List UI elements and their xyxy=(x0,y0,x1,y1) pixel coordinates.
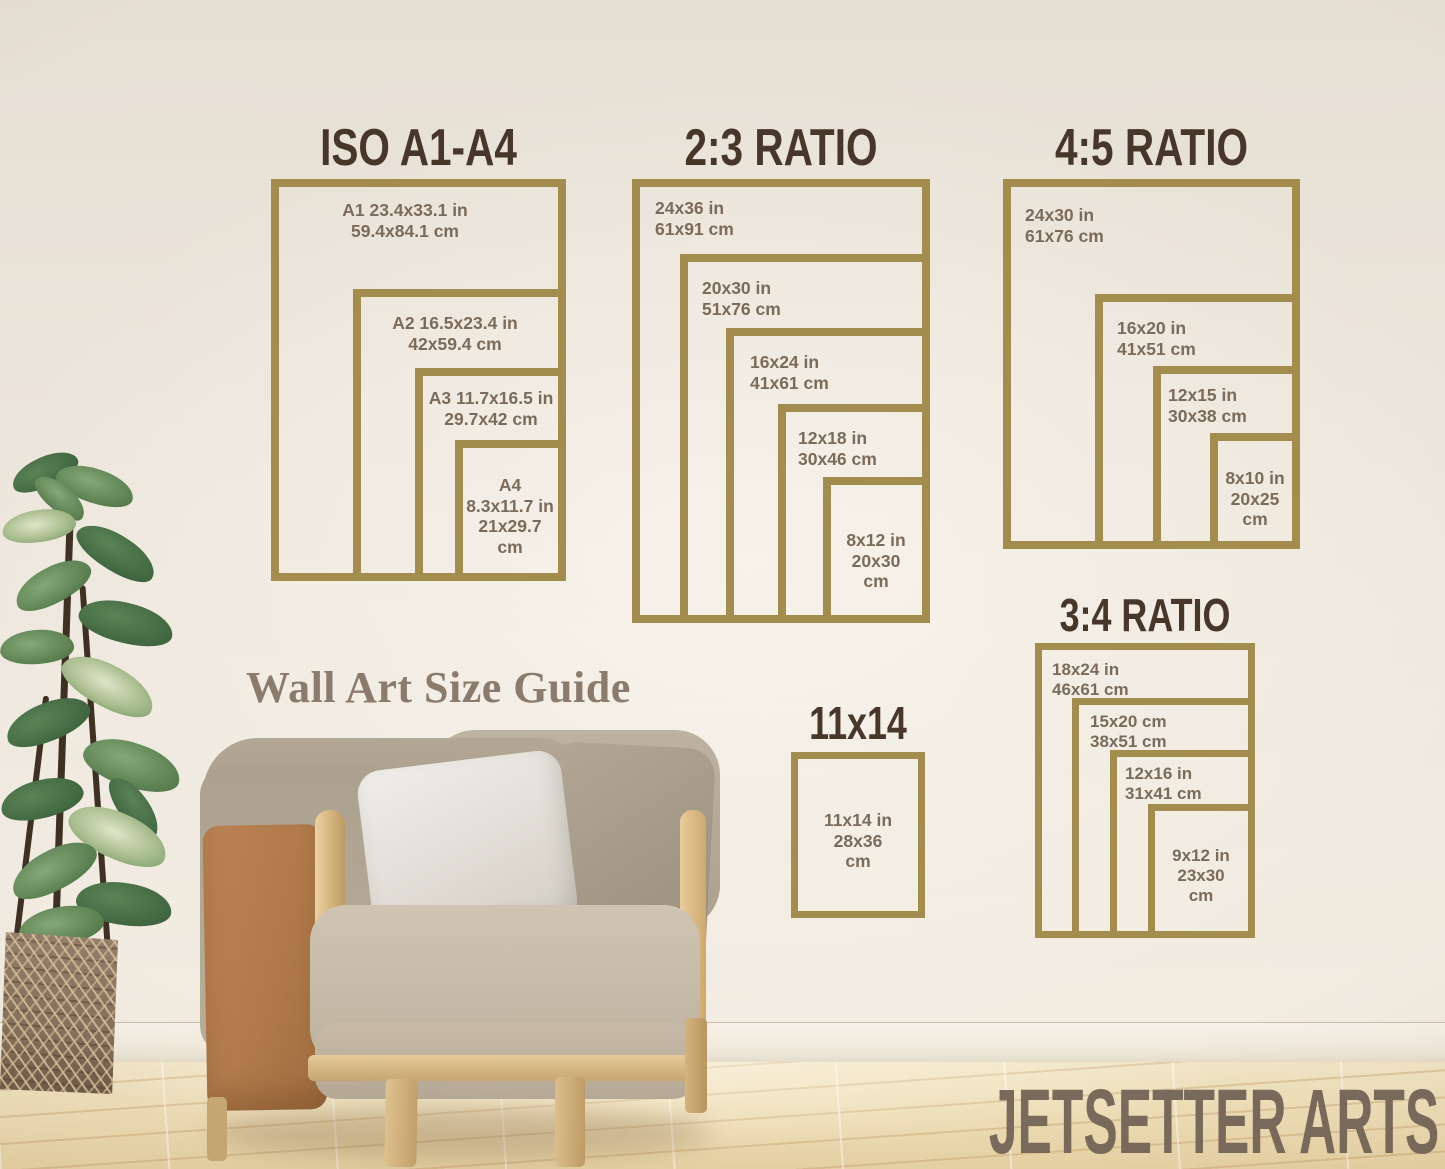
size-label-line: 18x24 in xyxy=(1052,660,1129,680)
size-label-line: 41x51 cm xyxy=(1117,339,1196,360)
size-label-12x15: 12x15 in 30x38 cm xyxy=(1168,385,1247,426)
size-label-line: 21x29.7 xyxy=(455,516,565,537)
size-label-line: 30x38 cm xyxy=(1168,406,1247,427)
plant-leaf xyxy=(75,592,178,654)
frame-stack-4-5: 24x30 in 61x76 cm 16x20 in 41x51 cm 12x1… xyxy=(1003,179,1300,549)
chair-floor-shadow xyxy=(210,1107,710,1159)
size-label-line: 61x91 cm xyxy=(655,219,734,240)
size-label-line: 61x76 cm xyxy=(1025,226,1104,247)
size-label-line: 20x30 xyxy=(826,551,926,572)
size-label-12x16: 12x16 in 31x41 cm xyxy=(1125,764,1202,804)
size-label-8x12: 8x12 in 20x30 cm xyxy=(826,530,926,592)
size-label-line: cm xyxy=(791,851,925,872)
size-guide-caption: Wall Art Size Guide xyxy=(246,662,631,713)
frame-stack-11x14: 11x14 in 28x36 cm xyxy=(791,752,925,918)
size-label-11x14: 11x14 in 28x36 cm xyxy=(791,810,925,872)
size-label-line: 15x20 cm xyxy=(1090,712,1167,732)
group-title-3-4: 3:4 RATIO xyxy=(1028,592,1262,638)
size-label-line: 42x59.4 cm xyxy=(370,334,540,355)
size-label-line: 38x51 cm xyxy=(1090,732,1167,752)
size-label-line: A4 xyxy=(455,475,565,496)
size-label-24x36: 24x36 in 61x91 cm xyxy=(655,198,734,239)
size-label-16x24: 16x24 in 41x61 cm xyxy=(750,352,829,393)
chair-leg-front-left xyxy=(384,1079,418,1168)
group-title-iso: ISO A1-A4 xyxy=(272,122,565,174)
size-label-24x30: 24x30 in 61x76 cm xyxy=(1025,205,1104,246)
size-label-line: 16x24 in xyxy=(750,352,829,373)
size-label-line: 24x36 in xyxy=(655,198,734,219)
room-scene: ISO A1-A4 A1 23.4x33.1 in 59.4x84.1 cm A… xyxy=(0,0,1445,1169)
size-label-line: A2 16.5x23.4 in xyxy=(370,313,540,334)
size-label-line: 20x25 xyxy=(1210,489,1300,510)
frame-stack-3-4: 18x24 in 46x61 cm 15x20 cm 38x51 cm 12x1… xyxy=(1035,643,1255,938)
size-label-line: 12x16 in xyxy=(1125,764,1202,784)
armchair xyxy=(180,725,715,1169)
size-label-a2: A2 16.5x23.4 in 42x59.4 cm xyxy=(370,313,540,354)
size-label-line: 29.7x42 cm xyxy=(416,409,566,430)
size-label-line: 8x10 in xyxy=(1210,468,1300,489)
size-label-a4: A4 8.3x11.7 in 21x29.7 cm xyxy=(455,475,565,558)
frame-stack-iso: A1 23.4x33.1 in 59.4x84.1 cm A2 16.5x23.… xyxy=(271,179,566,581)
size-label-line: cm xyxy=(455,537,565,558)
size-label-line: 31x41 cm xyxy=(1125,784,1202,804)
frame-stack-2-3: 24x36 in 61x91 cm 20x30 in 51x76 cm 16x2… xyxy=(632,179,930,623)
size-label-a1: A1 23.4x33.1 in 59.4x84.1 cm xyxy=(295,200,515,241)
size-label-line: 9x12 in xyxy=(1151,846,1251,866)
size-label-line: 12x18 in xyxy=(798,428,877,449)
size-label-line: 11x14 in xyxy=(791,810,925,831)
wicker-basket xyxy=(0,932,118,1094)
size-label-line: 16x20 in xyxy=(1117,318,1196,339)
size-label-line: cm xyxy=(1151,886,1251,906)
size-label-12x18: 12x18 in 30x46 cm xyxy=(798,428,877,469)
size-label-line: 41x61 cm xyxy=(750,373,829,394)
group-title-2-3: 2:3 RATIO xyxy=(634,122,929,174)
size-label-15x20: 15x20 cm 38x51 cm xyxy=(1090,712,1167,752)
size-label-line: 30x46 cm xyxy=(798,449,877,470)
size-label-line: 23x30 xyxy=(1151,866,1251,886)
size-label-line: A1 23.4x33.1 in xyxy=(295,200,515,221)
size-label-18x24: 18x24 in 46x61 cm xyxy=(1052,660,1129,700)
size-label-line: 46x61 cm xyxy=(1052,680,1129,700)
size-label-line: 20x30 in xyxy=(702,278,781,299)
size-label-a3: A3 11.7x16.5 in 29.7x42 cm xyxy=(416,388,566,429)
size-label-line: cm xyxy=(826,571,926,592)
size-label-9x12: 9x12 in 23x30 cm xyxy=(1151,846,1251,906)
size-label-line: 8.3x11.7 in xyxy=(455,496,565,517)
size-label-line: 59.4x84.1 cm xyxy=(295,221,515,242)
size-label-line: 8x12 in xyxy=(826,530,926,551)
size-label-8x10: 8x10 in 20x25 cm xyxy=(1210,468,1300,530)
size-label-line: 24x30 in xyxy=(1025,205,1104,226)
size-label-line: 28x36 xyxy=(791,831,925,852)
chair-leg-rear-left xyxy=(207,1097,227,1161)
group-title-4-5: 4:5 RATIO xyxy=(1004,122,1298,174)
brand-watermark: JETSETTER ARTS xyxy=(989,1076,1439,1168)
size-label-line: cm xyxy=(1210,509,1300,530)
size-label-line: A3 11.7x16.5 in xyxy=(416,388,566,409)
size-label-line: 12x15 in xyxy=(1168,385,1247,406)
chair-leg-front-right xyxy=(555,1077,585,1167)
size-label-line: 51x76 cm xyxy=(702,299,781,320)
group-title-11x14: 11x14 xyxy=(775,700,942,746)
chair-wood-rail xyxy=(308,1055,700,1081)
size-label-16x20: 16x20 in 41x51 cm xyxy=(1117,318,1196,359)
chair-leg-rear-right xyxy=(685,1018,707,1113)
size-label-20x30: 20x30 in 51x76 cm xyxy=(702,278,781,319)
